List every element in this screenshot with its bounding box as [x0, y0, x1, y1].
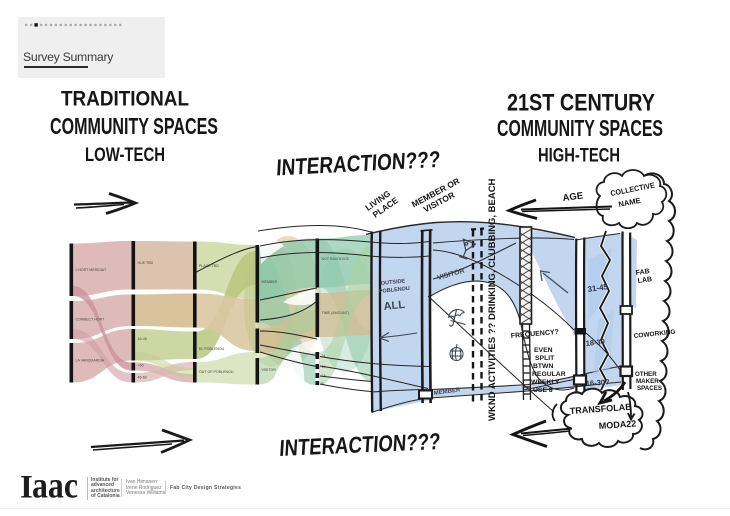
- svg-text:BTWN: BTWN: [533, 363, 553, 370]
- svg-text:aac: aac: [32, 475, 78, 501]
- svg-text:MAKER: MAKER: [636, 378, 659, 385]
- svg-text:OTHER: OTHER: [635, 371, 657, 378]
- svg-text:WKND ACTIVITIES ?? DRINKING, C: WKND ACTIVITIES ?? DRINKING, CLUBBING, B…: [487, 178, 498, 421]
- svg-text:SPACES: SPACES: [637, 385, 662, 392]
- svg-text:FREQUENCY?: FREQUENCY?: [511, 329, 560, 340]
- svg-text:I: I: [20, 475, 33, 501]
- svg-text:SPLIT: SPLIT: [535, 355, 555, 362]
- svg-text:USE 8: USE 8: [533, 387, 553, 394]
- svg-text:LAB: LAB: [637, 276, 652, 285]
- svg-text:WEEKLY: WEEKLY: [531, 379, 560, 386]
- svg-text:ALL: ALL: [383, 299, 406, 313]
- svg-text:EVEN: EVEN: [534, 347, 553, 354]
- svg-text:REGULAR: REGULAR: [532, 371, 566, 378]
- svg-text:AGE: AGE: [562, 191, 584, 204]
- svg-text:16-30?: 16-30?: [586, 377, 611, 388]
- svg-text:COWORKING: COWORKING: [633, 329, 675, 340]
